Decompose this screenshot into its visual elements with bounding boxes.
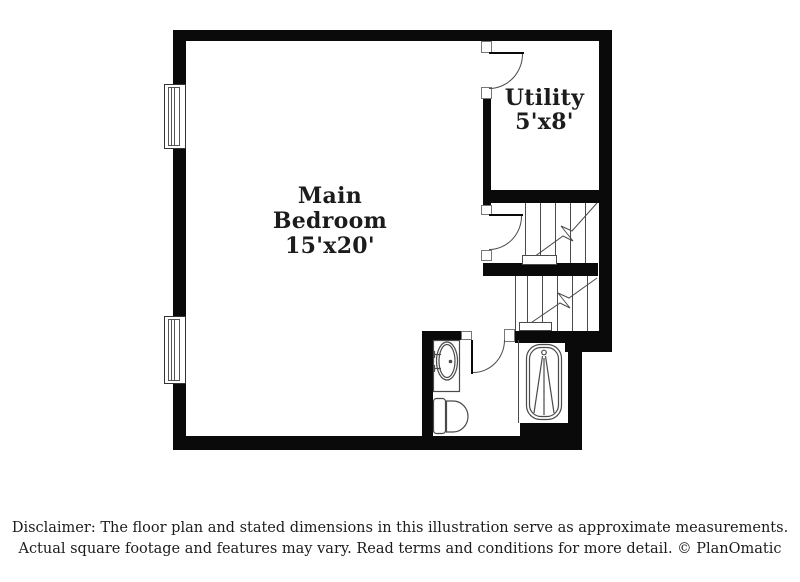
main-bedroom-dimensions: 15'x20' bbox=[230, 234, 430, 259]
main-bedroom-name-line1: Main bbox=[230, 184, 430, 209]
utility-name: Utility bbox=[491, 86, 598, 110]
utility-label: Utility 5'x8' bbox=[491, 86, 598, 134]
sink-icon bbox=[434, 341, 460, 392]
toilet-icon bbox=[434, 399, 469, 434]
disclaimer-line1: Disclaimer: The floor plan and stated di… bbox=[0, 518, 800, 539]
fixture-layer bbox=[0, 0, 800, 582]
disclaimer-line2: Actual square footage and features may v… bbox=[0, 539, 800, 560]
main-bedroom-name-line2: Bedroom bbox=[230, 209, 430, 234]
stairs-lower-icon bbox=[516, 276, 598, 331]
floor-plan-canvas: Main Bedroom 15'x20' Utility 5'x8' Discl… bbox=[0, 0, 800, 582]
bathtub-icon bbox=[527, 345, 562, 420]
disclaimer-text: Disclaimer: The floor plan and stated di… bbox=[0, 518, 800, 559]
utility-dimensions: 5'x8' bbox=[491, 110, 598, 134]
stairs-upper-icon bbox=[523, 203, 598, 265]
main-bedroom-label: Main Bedroom 15'x20' bbox=[230, 184, 430, 259]
